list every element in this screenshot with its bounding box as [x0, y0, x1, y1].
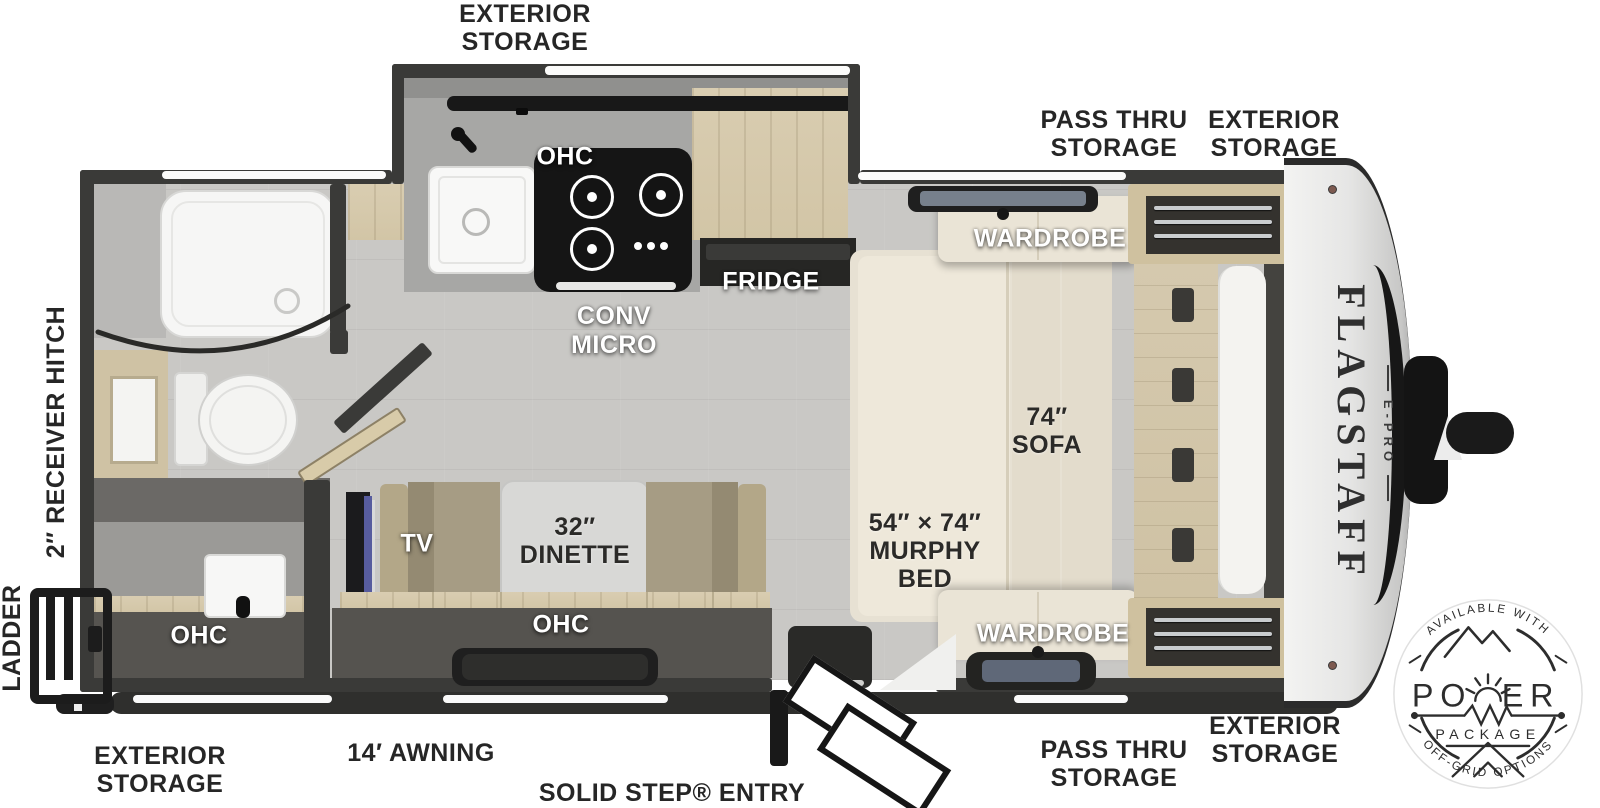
- slide-tray-rail: [1154, 618, 1272, 622]
- tray-glass: [982, 660, 1080, 682]
- front-bed-frame: [1134, 262, 1218, 598]
- stove-knob-icon: [660, 242, 668, 250]
- brand-name: FLAGSTAFF: [1328, 284, 1375, 582]
- hall-cabinet: [348, 184, 404, 240]
- storage-interior: [1146, 608, 1280, 666]
- pass-thru-tray: [966, 652, 1096, 690]
- stove-edge: [556, 282, 676, 290]
- label-exterior-storage-rear: EXTERIOR STORAGE: [94, 742, 226, 798]
- label-exterior-storage-front-top: EXTERIOR STORAGE: [1208, 106, 1340, 162]
- dinette-arm-right: [738, 484, 766, 602]
- wall-strip: [162, 171, 386, 179]
- label-murphy-bed: 54″ × 74″ MURPHY BED: [869, 509, 982, 593]
- power-left: PO: [1412, 678, 1472, 714]
- bed-slat-slot: [1172, 528, 1194, 562]
- bed-slat-slot: [1172, 448, 1194, 482]
- dinette-window-glass: [462, 654, 648, 680]
- label-dinette-ohc: OHC: [532, 611, 589, 640]
- window-knob-icon: [997, 208, 1009, 220]
- hitch-coupler: [1446, 412, 1514, 454]
- awning-strip: [1014, 695, 1128, 703]
- ladder-rung: [46, 594, 55, 680]
- rivet-icon: [1328, 661, 1337, 670]
- label-kitchen-ohc: OHC: [536, 143, 593, 172]
- slide-tray-rail: [1154, 220, 1272, 224]
- window-latch-icon: [516, 108, 528, 115]
- kitchen-window-bar: [447, 96, 857, 111]
- slideout-wall-left: [392, 64, 404, 184]
- slide-tray-rail: [1154, 632, 1272, 636]
- label-receiver-hitch: 2″ RECEIVER HITCH: [42, 306, 70, 558]
- stove-knob-icon: [634, 242, 642, 250]
- sofa-seam: [1006, 256, 1009, 616]
- stove-burner: [570, 175, 614, 219]
- slide-tray-rail: [1154, 206, 1272, 210]
- bath-faucet-icon: [236, 596, 250, 618]
- front-bed-mattress: [1218, 266, 1266, 594]
- label-fridge: FRIDGE: [722, 268, 819, 297]
- fridge-panel: [706, 244, 850, 260]
- ladder-rung: [64, 594, 73, 680]
- stove-knob-icon: [647, 242, 655, 250]
- stove-burner: [639, 173, 683, 217]
- wall-strip: [545, 66, 850, 75]
- label-exterior-storage-front-bottom: EXTERIOR STORAGE: [1209, 712, 1341, 768]
- label-pass-thru-storage-bottom: PASS THRU STORAGE: [1040, 736, 1187, 792]
- awning-strip: [133, 695, 332, 703]
- slide-tray-rail: [1154, 646, 1272, 650]
- stove-burner: [570, 227, 614, 271]
- brand-sub: E-PRO: [1381, 365, 1396, 501]
- bath-living-wall: [304, 480, 330, 692]
- sink-drain-icon: [462, 208, 490, 236]
- bed-slat-slot: [1172, 368, 1194, 402]
- shower-curtain-arc: [92, 288, 352, 398]
- label-pass-thru-storage-top: PASS THRU STORAGE: [1040, 106, 1187, 162]
- pass-thru-storage-bottom: [1128, 598, 1298, 678]
- badge-package-text: PACKAGE: [1435, 727, 1540, 743]
- slide-tray-rail: [1154, 234, 1272, 238]
- label-sofa: 74″ SOFA: [1012, 403, 1082, 459]
- label-wardrobe-top: WARDROBE: [974, 225, 1127, 254]
- brand-logo: E-PRO FLAGSTAFF: [1328, 284, 1396, 582]
- label-awning: 14′ AWNING: [347, 739, 495, 767]
- storage-interior: [1146, 196, 1280, 254]
- label-conv-micro: CONV MICRO: [571, 302, 657, 360]
- kitchen-sink: [428, 166, 536, 274]
- label-bath-ohc: OHC: [170, 622, 227, 651]
- bath-shadow: [94, 478, 330, 526]
- label-solid-step-entry: SOLID STEP® ENTRY: [539, 779, 805, 807]
- propane-cover: [1404, 356, 1448, 504]
- floorplan-canvas: E-PRO FLAGSTAFF AVAILABLE WITH PO ER: [0, 0, 1600, 808]
- receiver-hitch-stub: [88, 626, 102, 652]
- bed-slat-slot: [1172, 288, 1194, 322]
- power-package-badge: AVAILABLE WITH PO ER PACKAGE OFF-GRID OP…: [1390, 596, 1586, 792]
- power-right: ER: [1502, 678, 1561, 714]
- awning-strip: [443, 695, 668, 703]
- label-wardrobe-bottom: WARDROBE: [977, 620, 1130, 649]
- label-exterior-storage-top: EXTERIOR STORAGE: [459, 0, 591, 56]
- wall-bottom-left: [80, 678, 772, 692]
- label-tv: TV: [401, 530, 434, 559]
- dinette-bench-right-back: [712, 482, 738, 602]
- label-ladder: LADDER: [0, 584, 26, 691]
- label-dinette: 32″ DINETTE: [520, 513, 630, 569]
- murphy-window-glass: [920, 191, 1086, 206]
- wall-strip: [858, 172, 1126, 180]
- rivet-icon: [1328, 185, 1337, 194]
- pass-thru-storage-top: [1128, 184, 1298, 264]
- dinette-window: [452, 648, 658, 686]
- slideout-wall-right: [848, 64, 860, 184]
